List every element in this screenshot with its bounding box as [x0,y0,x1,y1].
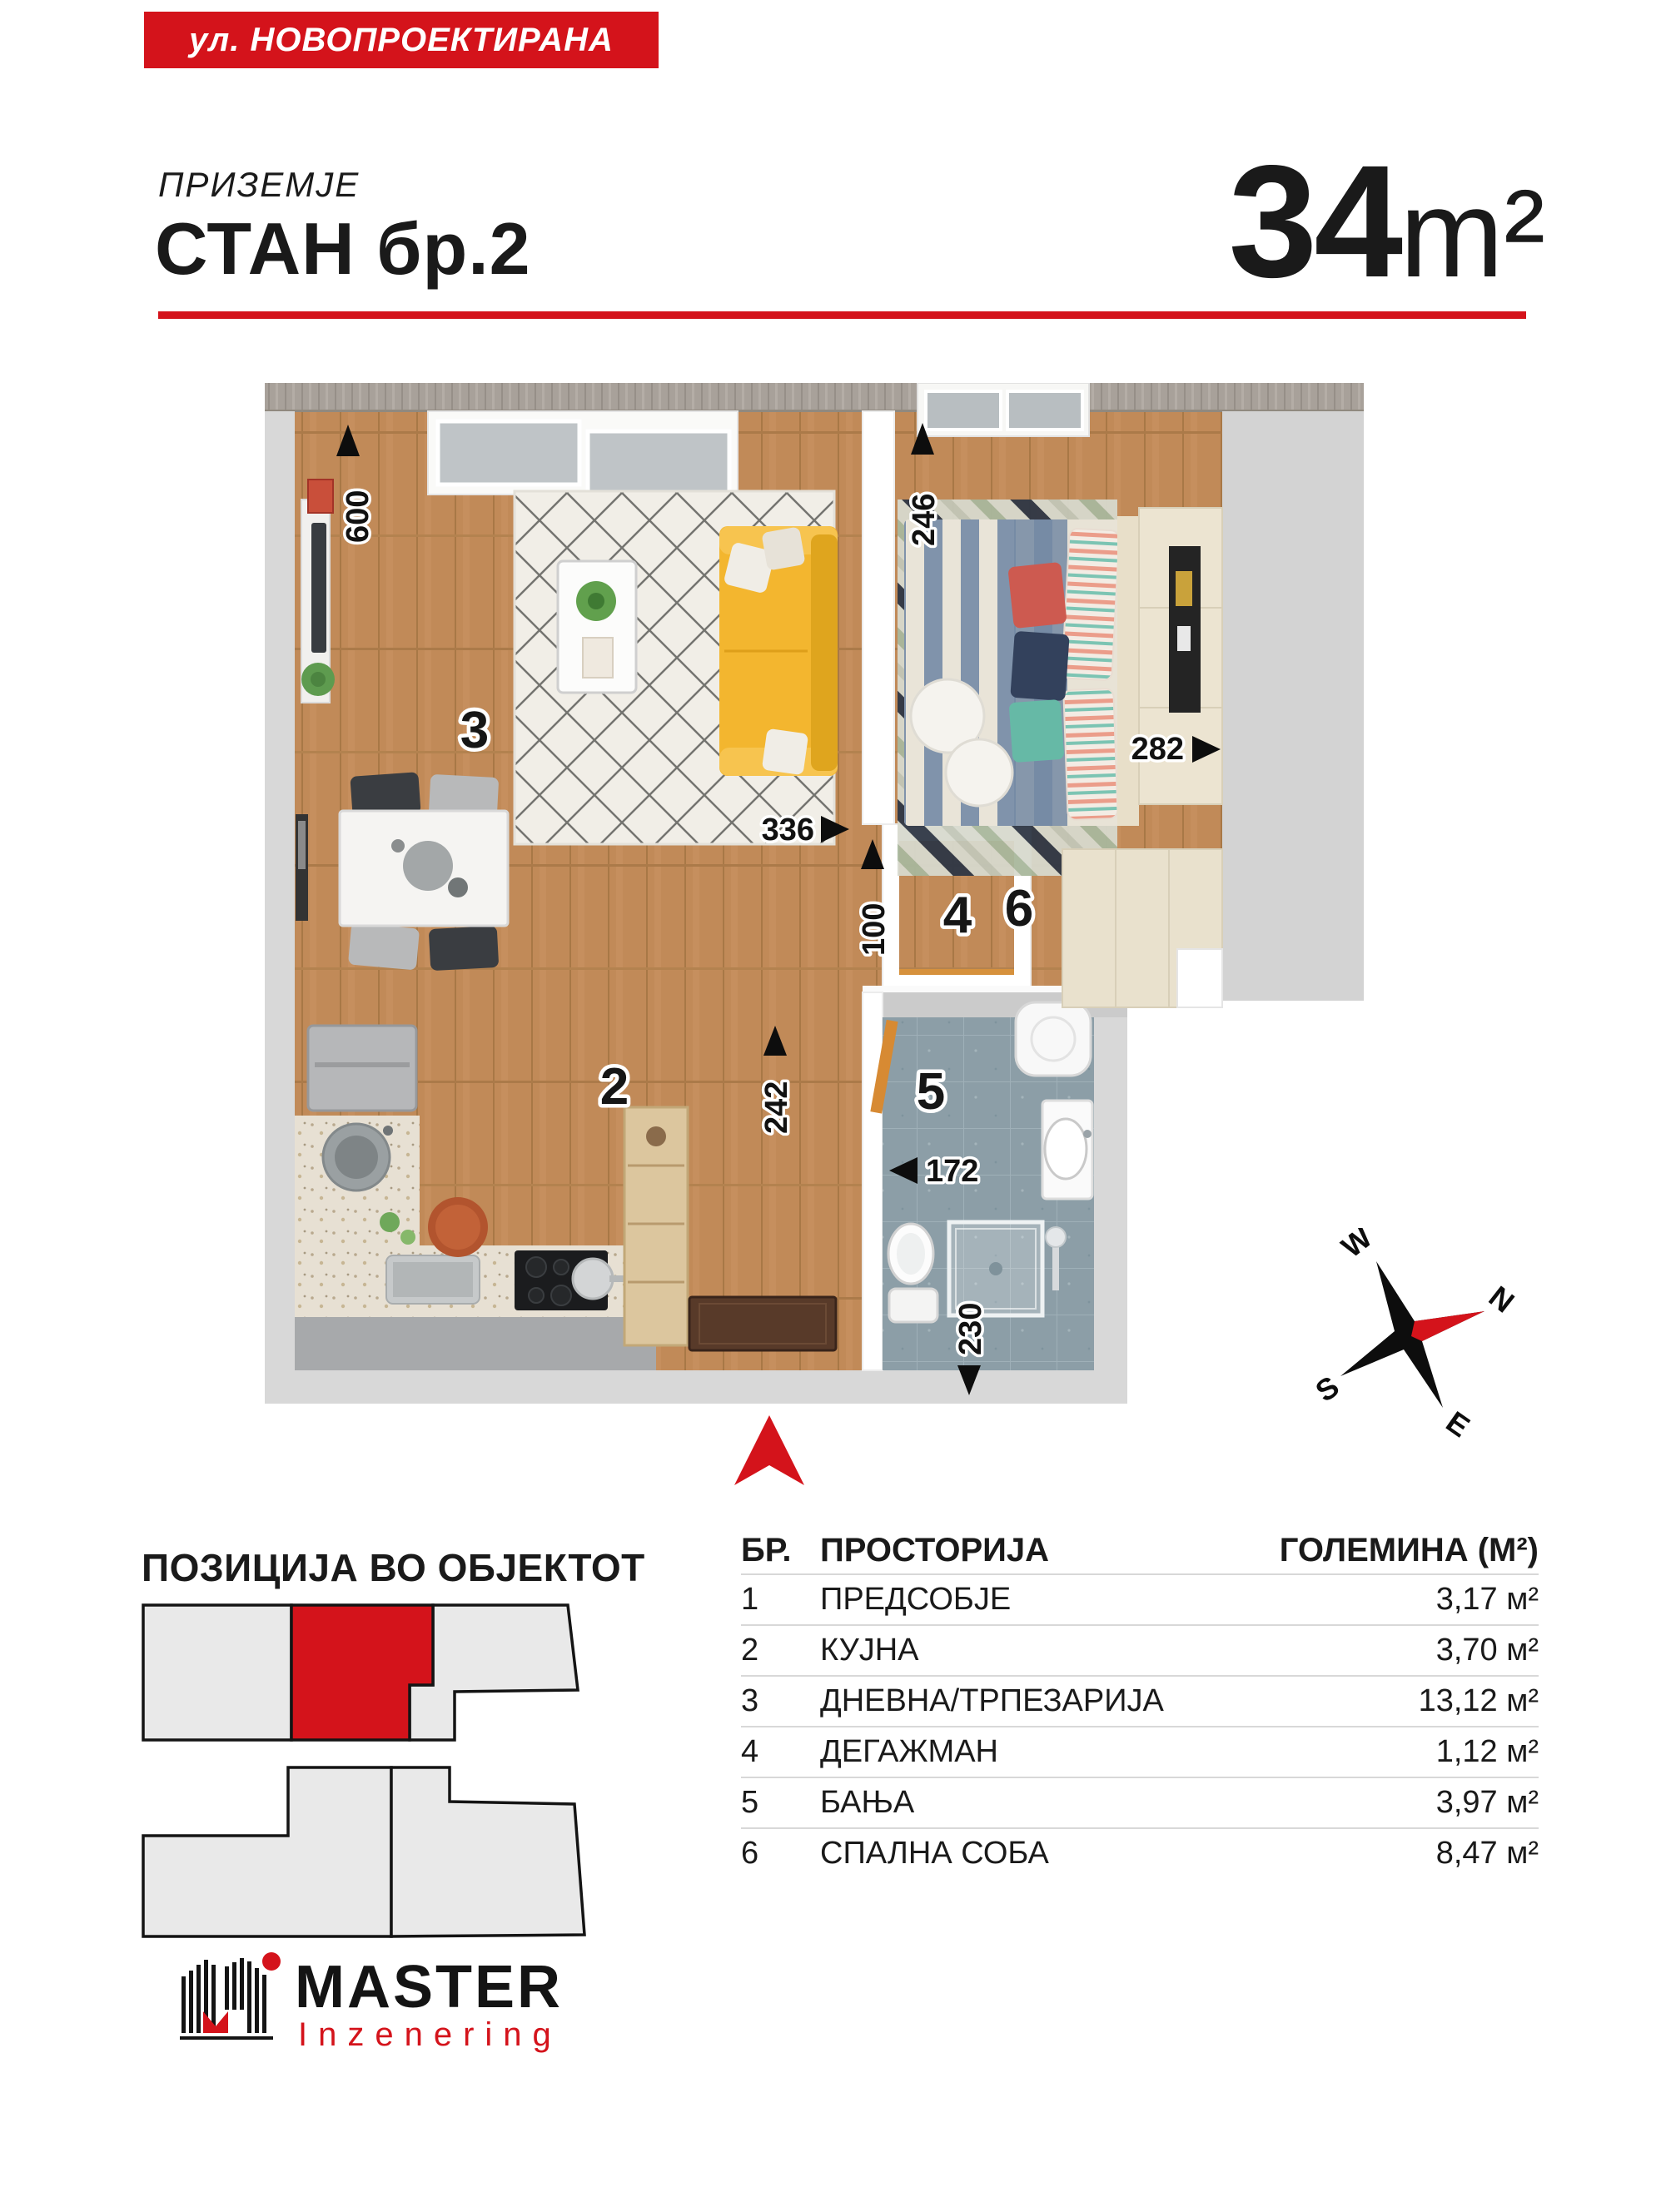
toilet-tank [889,1289,937,1322]
living-bedroom-wall [863,411,894,824]
herbs-1 [380,1212,400,1232]
dim-600: 600 [341,490,375,543]
row-size: 3,70 м² [1436,1633,1539,1668]
burner-3 [529,1288,544,1303]
window-pane-2 [1007,391,1082,430]
building-top-right-unit [410,1605,578,1740]
table-tray [583,638,613,678]
balcony-door-pane-right [588,431,729,495]
row-name: ПРЕДСОБЈЕ [820,1582,1436,1618]
row-size: 1,12 м² [1436,1734,1539,1770]
position-diagram [125,1588,608,1955]
bowl [448,877,468,897]
table-plant-core [588,593,604,609]
placemat [403,841,453,891]
shower-drain [989,1262,1002,1275]
dim-336: 336 [762,813,814,848]
table-row: 3 ДНЕВНА/ТРПЕЗАРИЈА 13,12 м² [741,1675,1539,1726]
row-num: 2 [741,1633,820,1668]
sink-faucet [383,1126,393,1136]
table-row: 1 ПРЕДСОБЈЕ 3,17 м² [741,1573,1539,1624]
table-row: 5 БАЊА 3,97 м² [741,1777,1539,1827]
plant-core [311,672,326,687]
dining-chair-3 [348,923,420,971]
wardrobe-step [1177,949,1222,1007]
cabinet-front [295,1317,656,1370]
row-num: 6 [741,1836,820,1872]
building-bottom-right-unit [391,1767,584,1936]
row-name: ДНЕВНА/ТРПЕЗАРИЈА [820,1683,1419,1719]
sofa-back [811,534,838,771]
bathroom-right-wall [1094,1008,1127,1370]
dim-172: 172 [926,1154,978,1189]
magazine [308,480,333,513]
dining-chair-4 [429,926,500,971]
herbs-2 [400,1230,415,1245]
street-banner: ул. НОВОПРОЕКТИРАНА [144,12,659,68]
top-facade-wall [265,383,1364,411]
row-num: 1 [741,1582,820,1618]
headboard [1117,516,1139,826]
burner-1 [526,1257,546,1277]
vase [391,839,405,852]
window-pane-1 [926,391,1001,430]
degazman-threshold [899,969,1014,975]
coffee-table [558,561,636,693]
bottom-exterior-wall [265,1370,1127,1404]
cutting-board-center [435,1205,480,1250]
dim-282: 282 [1131,732,1184,767]
row-name: КУЈНА [820,1633,1436,1668]
row-size: 3,97 м² [1436,1785,1539,1821]
dim-246: 246 [907,494,942,546]
shower-bar [1052,1244,1059,1290]
round-sink-basin [335,1136,378,1179]
balcony-door-pane-left [438,421,579,485]
floor-plan: 600 246 282 336 100 242 172 230 3 2 4 6 … [265,383,1364,1490]
dim-242: 242 [759,1081,794,1134]
pillow-navy [1010,631,1069,701]
row-num: 3 [741,1683,820,1719]
sofa-pillow-3 [762,728,808,775]
washbasin [1045,1119,1087,1179]
dim-100: 100 [857,903,892,956]
apartment-title: СТАН бр.2 [155,206,531,291]
col-header-room: ПРОСТОРИЈА [820,1532,1280,1569]
pillow-striped-1 [1062,529,1119,681]
row-name: СПАЛНА СОБА [820,1836,1436,1872]
burner-4 [551,1285,571,1305]
left-exterior-wall [265,411,295,1404]
wall-art-canvas [298,821,306,869]
art-streak-gold [1176,571,1192,606]
row-num: 4 [741,1734,820,1770]
logo-subtitle: Inzenering [298,2016,562,2054]
dim-230: 230 [953,1303,988,1355]
door-mat [689,1297,836,1350]
boiler [1016,1002,1091,1076]
pillow-red [1007,562,1067,629]
row-size: 13,12 м² [1419,1683,1539,1719]
row-size: 8,47 м² [1436,1836,1539,1872]
divider-line [158,311,1526,319]
row-name: БАЊА [820,1785,1436,1821]
table-row: 4 ДЕГАЖМАН 1,12 м² [741,1726,1539,1777]
building-bottom-left-unit [143,1767,391,1936]
flyer-page: ул. НОВОПРОЕКТИРАНА ПРИЗЕМЈЕ СТАН бр.2 3… [0,0,1656,2212]
toilet-seat [897,1233,925,1275]
total-area: 34m² [1229,142,1545,301]
compass-s: S [1309,1369,1345,1408]
row-size: 3,17 м² [1436,1582,1539,1618]
col-header-size: ГОЛЕМИНА (М²) [1280,1532,1539,1569]
shelf-item [646,1126,666,1146]
logo-red-dot [262,1952,281,1971]
fridge-split [315,1062,410,1067]
sofa [719,526,838,776]
area-unit: m² [1400,163,1545,303]
room-label-6: 6 [1005,880,1033,937]
table-row: 2 КУЈНА 3,70 м² [741,1624,1539,1675]
bathroom [863,986,1127,1370]
room-label-2: 2 [600,1058,629,1116]
pillow-teal [1009,699,1065,763]
area-value: 34 [1229,132,1400,311]
room-label-4: 4 [943,887,972,944]
compass-e: E [1440,1404,1476,1444]
pot [573,1259,613,1299]
table-row: 6 СПАЛНА СОБА 8,47 м² [741,1827,1539,1878]
floor-label: ПРИЗЕМЈЕ [158,165,360,205]
burner-2 [554,1260,569,1275]
art-streak-white [1177,626,1191,651]
rooms-table: БР. ПРОСТОРИЈА ГОЛЕМИНА (М²) 1 ПРЕДСОБЈЕ… [741,1527,1539,1878]
position-heading: ПОЗИЦИЈА ВО ОБЈЕКТОТ [142,1545,645,1590]
room-label-3: 3 [460,702,489,759]
basin-faucet [1083,1130,1092,1138]
compass-rose: W N S E [1303,1228,1519,1444]
master-logo-emblem [178,1951,283,2048]
tv [311,523,326,653]
entrance-arrow [734,1415,804,1485]
bathroom-left-wall [863,992,883,1370]
compass-n: N [1483,1279,1519,1319]
compass-north-needle [1411,1311,1484,1341]
row-num: 5 [741,1785,820,1821]
row-name: ДЕГАЖМАН [820,1734,1436,1770]
table-header-row: БР. ПРОСТОРИЈА ГОЛЕМИНА (М²) [741,1527,1539,1573]
sofa-pillow-2 [761,526,805,570]
street-name: ул. НОВОПРОЕКТИРАНА [189,22,614,59]
prep-sink-basin [393,1262,473,1297]
pillow-striped-2 [1063,688,1117,820]
shower-head [1046,1227,1066,1247]
room-label-5: 5 [917,1063,945,1121]
col-header-num: БР. [741,1532,820,1569]
pouf-2 [946,739,1012,806]
compass-w: W [1335,1228,1378,1265]
fridge [308,1026,416,1111]
right-exterior-zone [1222,411,1364,1001]
building-top-left-unit [143,1605,291,1740]
logo-name: MASTER [295,1953,563,2021]
